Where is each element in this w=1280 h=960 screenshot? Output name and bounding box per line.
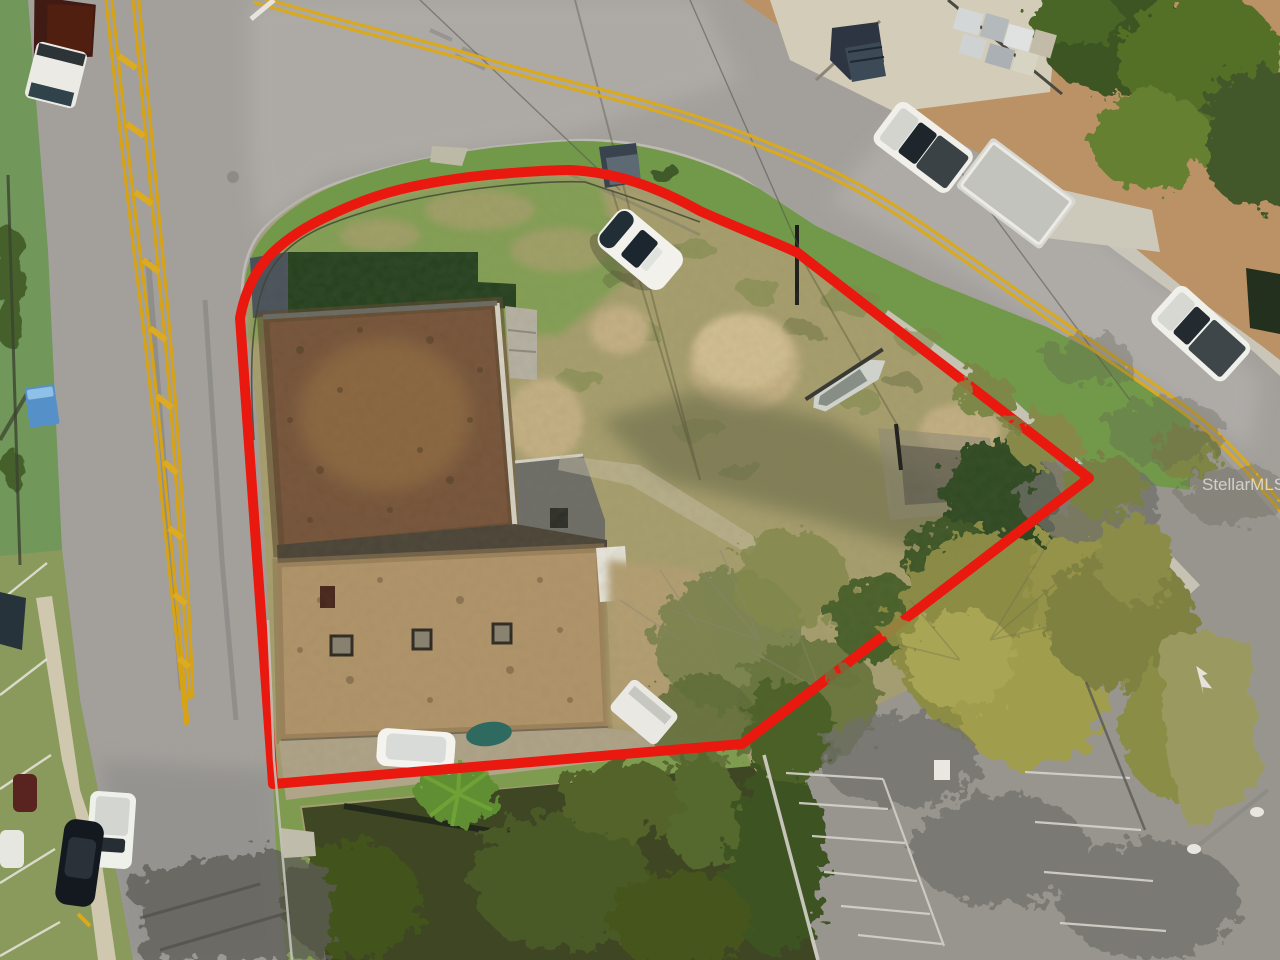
svg-text:StellarMLS: StellarMLS bbox=[1202, 475, 1280, 494]
